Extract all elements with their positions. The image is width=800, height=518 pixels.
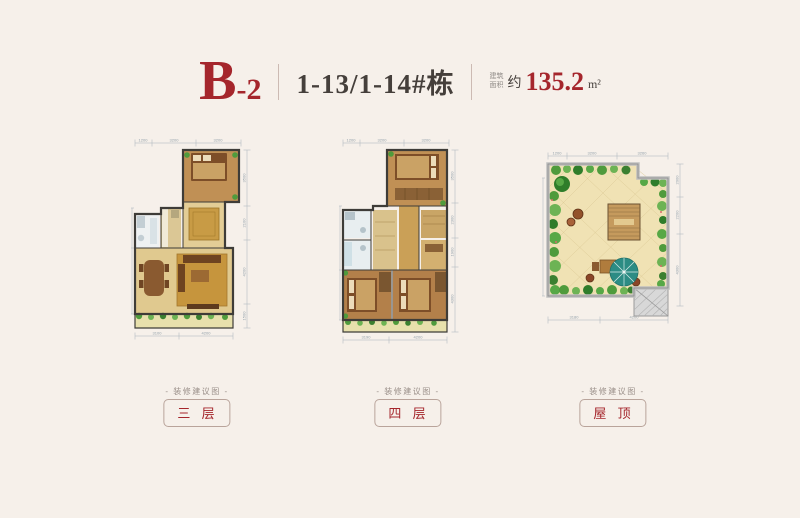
dim-label: 4300 [450, 294, 455, 304]
dim-label: 4200 [242, 267, 247, 277]
toilet [360, 245, 366, 251]
rooms [135, 150, 239, 328]
umbrella-icon [610, 258, 638, 286]
dim-label: 3180 [570, 315, 580, 320]
area-label-top: 建筑 [489, 73, 503, 82]
dim-label: 2100 [242, 218, 247, 228]
area-approx: 约 [507, 72, 521, 95]
outdoor-chair [592, 262, 599, 271]
planter-pot [567, 218, 575, 226]
plan-code: B -2 [199, 56, 261, 107]
dim-label: 3260 [638, 151, 648, 156]
plan-code-number: -2 [236, 73, 261, 107]
dim-label: 1200 [553, 151, 563, 156]
floorplan-floor4-drawing: 1200 3200 3200 3500 2300 1900 4300 3190 … [339, 136, 461, 348]
plan-caption: - 装修建议图 - [376, 386, 439, 397]
floorplan-brochure: B -2 1-13/1-14#栋 建筑 面积 约 135.2 m² [0, 0, 800, 518]
stove [171, 210, 179, 218]
dim-label: 3200 [214, 138, 224, 143]
wardrobe [435, 272, 447, 292]
plant-icon [440, 200, 446, 206]
header-divider [278, 64, 279, 100]
toilet [138, 235, 144, 241]
tv-cabinet [187, 304, 219, 309]
plant-icon [232, 152, 238, 158]
building-numbers: 1-13/1-14#栋 [296, 62, 454, 101]
plant-icon [184, 152, 190, 158]
toilet [360, 227, 366, 233]
plant-icon [388, 151, 394, 157]
dim-label: 4200 [414, 335, 424, 340]
dim-label: 3200 [170, 138, 180, 143]
plan-code-letter: B [199, 56, 236, 106]
dim-label: 3200 [422, 138, 432, 143]
dim-label: 1200 [347, 138, 357, 143]
dim-label: 1200 [139, 138, 149, 143]
planter-pot [586, 274, 594, 282]
desk [425, 244, 443, 252]
bathtub [150, 218, 157, 244]
header: B -2 1-13/1-14#栋 建筑 面积 约 135.2 m² [0, 56, 800, 107]
stair-landing [614, 219, 634, 225]
plan-caption: - 装修建议图 - [581, 386, 644, 397]
area-block: 建筑 面积 约 135.2 m² [489, 69, 600, 95]
plan-caption: - 装修建议图 - [165, 386, 228, 397]
coffee-table [191, 270, 209, 282]
kitchen-counter [162, 209, 168, 247]
wardrobe [395, 188, 443, 200]
sofa-side [178, 264, 185, 292]
sink [345, 212, 355, 220]
dim-label: 3100 [153, 331, 163, 336]
dim-label: 1500 [242, 311, 247, 321]
header-divider [471, 64, 472, 100]
rooms [343, 150, 447, 332]
sofa [183, 255, 221, 263]
dim-label: 1900 [450, 247, 455, 257]
dim-label: 4300 [675, 265, 680, 275]
foyer-rug [189, 208, 219, 240]
area-label: 建筑 面积 [489, 73, 503, 95]
dining-table [144, 260, 164, 296]
floorplan-roof-drawing: 1200 3200 3260 2000 2200 4300 3180 4200 [542, 148, 692, 334]
hallway-floor [399, 206, 419, 270]
floor-label-3f: 三 层 [163, 399, 230, 427]
floor-label-roof: 屋 顶 [579, 399, 646, 427]
planter-pot [573, 209, 583, 219]
terrace [548, 164, 668, 316]
plant-icon [232, 194, 238, 200]
dim-label: 4200 [202, 331, 212, 336]
area-label-bottom: 面积 [489, 82, 503, 91]
closet-floor [373, 210, 397, 270]
dim-label: 3190 [362, 335, 372, 340]
dim-label: 3200 [588, 151, 598, 156]
dim-label: 3500 [242, 173, 247, 183]
bathtub [344, 242, 352, 266]
dim-label: 2000 [675, 175, 680, 185]
dim-label: 2200 [675, 210, 680, 220]
floor-label-4f: 四 层 [374, 399, 441, 427]
dim-label: 3500 [450, 171, 455, 181]
dim-label: 2300 [450, 215, 455, 225]
wardrobe [379, 272, 391, 292]
sink [137, 216, 145, 228]
dim-label: 3200 [378, 138, 388, 143]
floorplan-floor3-drawing: 1200 3200 3200 3500 2100 4200 1500 3100 … [131, 136, 253, 342]
area-value: 135.2 [525, 69, 584, 95]
area-unit: m² [588, 77, 601, 95]
